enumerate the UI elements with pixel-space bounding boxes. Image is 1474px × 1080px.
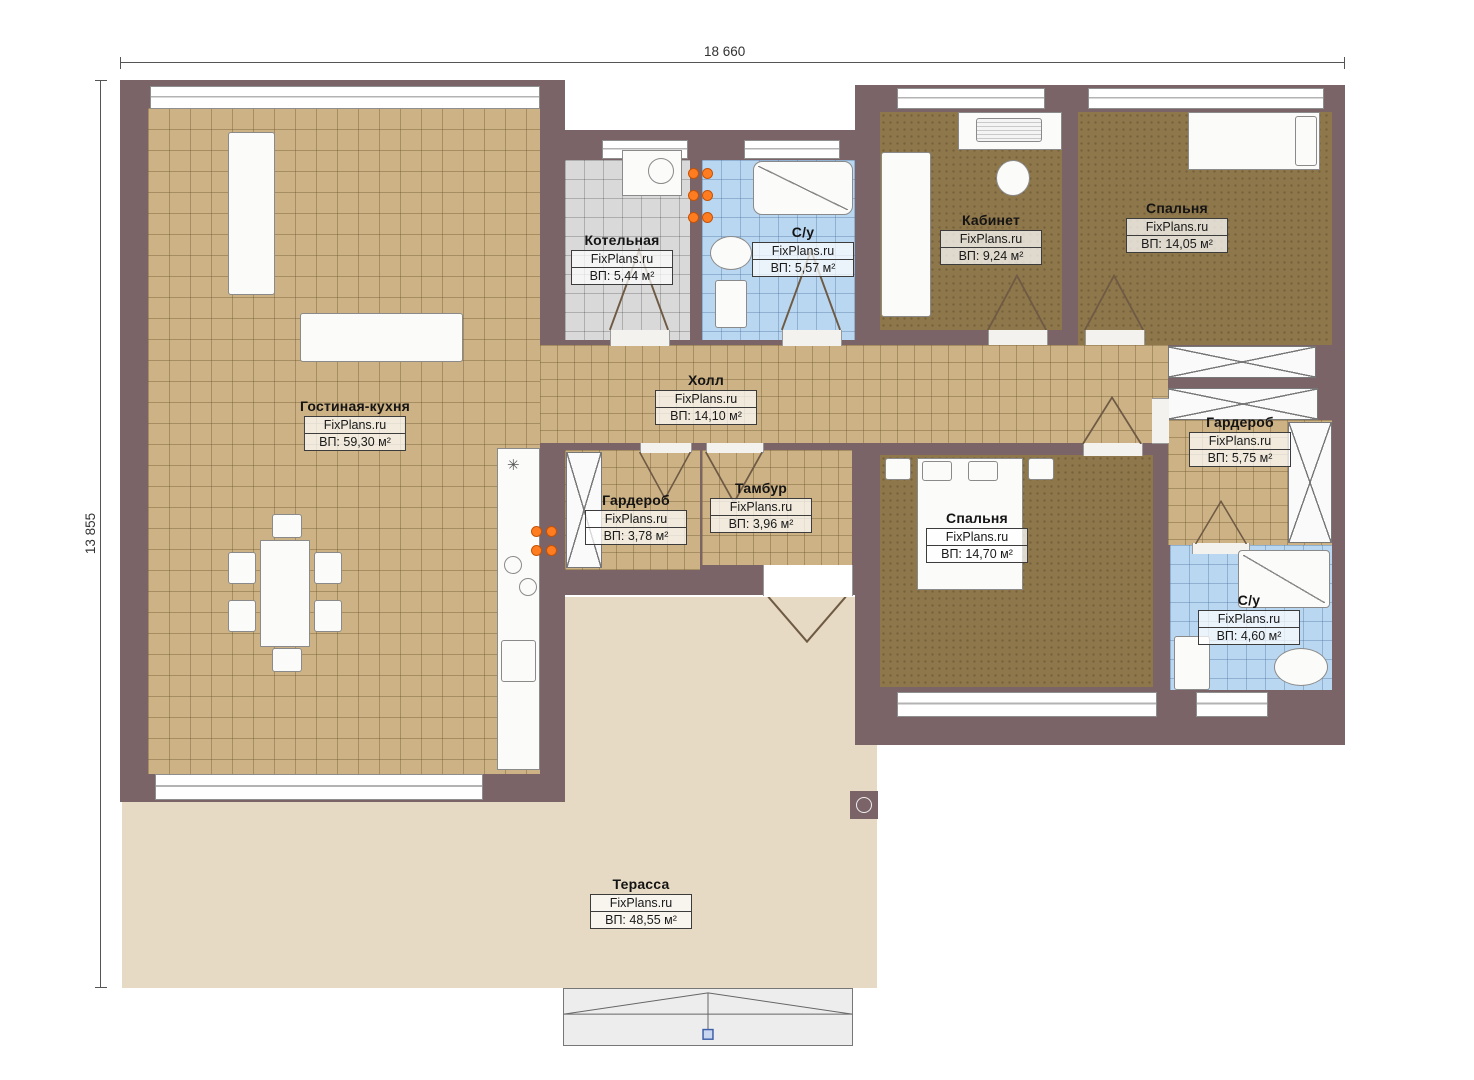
washing-machine [715,280,747,328]
hall-floor [540,345,1168,443]
dining-chair [314,600,342,632]
room-label-hall: Холл FixPlans.ruВП: 14,10 м² [655,372,757,425]
dimension-width-label: 18 660 [700,44,749,59]
steps-lines [564,989,852,1045]
manifold-valve [702,168,713,179]
manifold-valve [688,212,699,223]
kitchen-sink-bowl [519,578,537,596]
door-opening-bedroom-top [1085,330,1145,345]
sofa-horizontal [300,313,463,362]
room-label-bedroom-top: Спальня FixPlans.ruВП: 14,05 м² [1126,200,1228,253]
sofa-vertical [228,132,275,295]
nightstand [885,458,911,480]
door-swing-bedroom-top [1083,274,1145,330]
office-chair [996,160,1030,196]
dimension-height-label: 13 855 [83,509,98,558]
dining-chair [314,552,342,584]
dining-table [260,540,310,647]
office-sofa [881,152,931,317]
room-label-living: Гостиная-кухня FixPlans.ruВП: 59,30 м² [300,398,410,451]
door-opening-bathroom-top [782,330,842,346]
stove-burner [531,545,542,556]
nightstand [1028,458,1054,480]
kitchen-sink-bowl [504,556,522,574]
room-label-office: Кабинет FixPlans.ruВП: 9,24 м² [940,212,1042,265]
fridge-icon: ✳ [507,456,520,474]
dining-chair [272,648,302,672]
window-bathroom-top [744,140,840,159]
room-label-vestibule: Тамбур FixPlans.ruВП: 3,96 м² [710,480,812,533]
room-label-wardrobe-right: Гардероб FixPlans.ruВП: 5,75 м² [1189,414,1291,467]
door-swing-office [986,274,1048,330]
room-label-bathroom-bottom: С/у FixPlans.ruВП: 4,60 м² [1198,592,1300,645]
dining-chair [228,600,256,632]
window-office-top [897,88,1045,109]
door-opening-bedroom-bottom [1083,443,1143,456]
entrance-threshold [763,565,853,596]
window-bedroom-top [1088,88,1324,109]
door-opening-wardrobe-right [1152,398,1169,444]
bed-pillow [1295,116,1317,166]
window-bathroom-bottom [1196,692,1268,717]
manifold-valve [688,168,699,179]
dimension-line-left [100,80,101,988]
closet-row-1 [1168,346,1316,378]
door-swing-bedroom-bottom [1081,396,1143,444]
entrance-steps [563,988,853,1046]
kitchen-oven [501,640,536,682]
bed-pillow [968,461,998,481]
door-swing-entrance [766,597,848,643]
kitchen-counter [497,448,540,770]
stove-burner [531,526,542,537]
boiler-dial [648,158,674,184]
toilet-top [710,236,752,270]
terrace-floor-lower [122,802,877,988]
room-label-terrace: Терасса FixPlans.ruВП: 48,55 м² [590,876,692,929]
manifold-valve [702,190,713,201]
room-label-wardrobe-mid: Гардероб FixPlans.ruВП: 3,78 м² [585,492,687,545]
dining-chair [272,514,302,538]
stove-burner [546,545,557,556]
stove-burner [546,526,557,537]
dining-chair [228,552,256,584]
door-swing-bathroom-bottom [1194,500,1248,544]
door-opening-boiler [610,330,670,346]
toilet-bottom [1274,648,1328,686]
door-opening-office [988,330,1048,345]
room-label-bathroom-top: С/у FixPlans.ruВП: 5,57 м² [752,224,854,277]
manifold-valve [688,190,699,201]
terrace-column [850,791,878,819]
window-living-terrace [155,774,483,800]
bathtub [753,161,853,215]
room-label-bedroom-bottom: Спальня FixPlans.ruВП: 14,70 м² [926,510,1028,563]
closet-tall-right [1288,422,1332,543]
bed-pillow [922,461,952,481]
window-living-top [150,86,540,109]
office-printer [976,118,1042,142]
window-bedroom-bottom [897,692,1157,717]
room-label-boiler: Котельная FixPlans.ruВП: 5,44 м² [571,232,673,285]
dimension-line-top [120,62,1345,63]
manifold-valve [702,212,713,223]
floor-plan: ✳ Гостиная-кухня FixPlans.ruВП: 59,30 м²… [0,0,1474,1080]
